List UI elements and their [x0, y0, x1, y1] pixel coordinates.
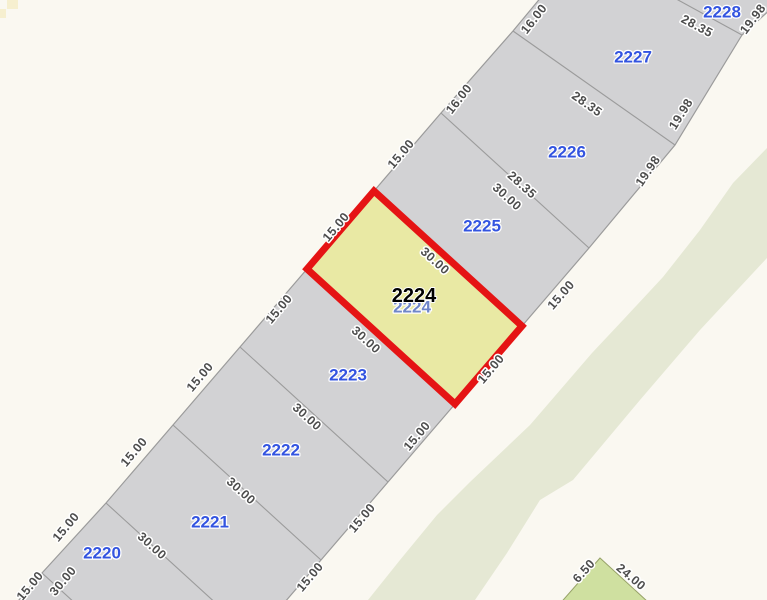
parcel-label-2228: 2228 [703, 3, 741, 22]
parcel-label-2227: 2227 [614, 48, 652, 67]
parcel-label-2220: 2220 [83, 544, 121, 563]
corner-mark [0, 9, 6, 18]
parcel-label-2226: 2226 [548, 143, 586, 162]
parcel-label-2222: 2222 [262, 441, 300, 460]
cadastral-map[interactable]: 15.0030.0015.0015.0015.0015.0015.0015.00… [0, 0, 767, 600]
parcel-label-2221: 2221 [191, 513, 229, 532]
corner-mark [7, 0, 18, 9]
selected-parcel-label: 2224 [392, 285, 437, 307]
parcel-label-2225: 2225 [463, 217, 501, 236]
map-viewport[interactable]: 15.0030.0015.0015.0015.0015.0015.0015.00… [0, 0, 767, 600]
parcel-label-2223: 2223 [329, 366, 367, 385]
